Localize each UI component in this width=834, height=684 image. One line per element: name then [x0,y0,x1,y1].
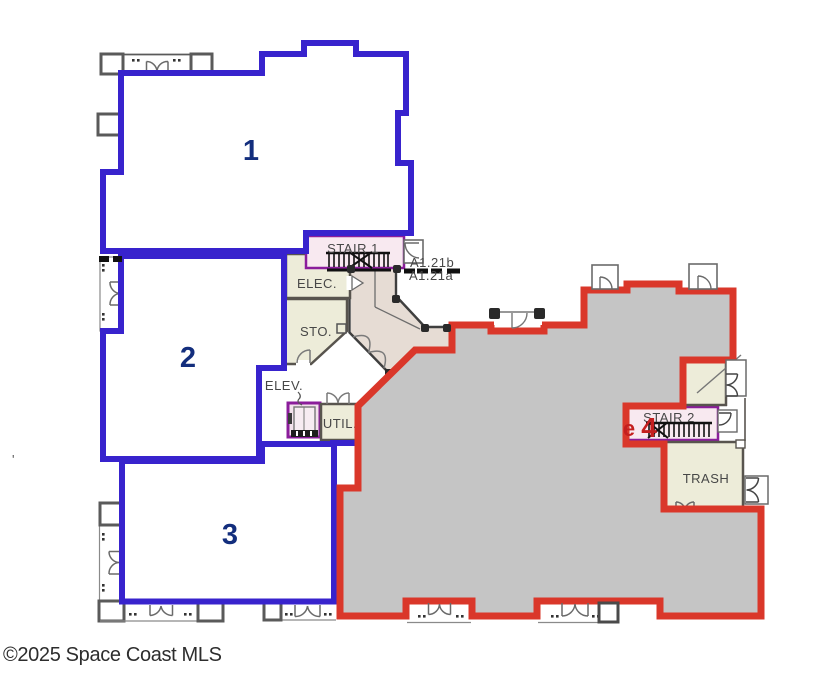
svg-text:ELEC.: ELEC. [297,276,337,291]
svg-text:A1.21a: A1.21a [409,268,453,283]
svg-text:e: e [623,416,635,441]
svg-text:©2025 Space Coast MLS: ©2025 Space Coast MLS [3,644,222,666]
svg-text:TRASH: TRASH [683,471,730,486]
svg-text:STO.: STO. [300,324,332,339]
svg-text:3: 3 [222,519,238,551]
svg-text:4: 4 [641,412,657,443]
svg-text:STAIR 1: STAIR 1 [327,241,379,256]
svg-text:1: 1 [243,135,259,167]
svg-text:': ' [12,452,14,467]
svg-text:ELEV.: ELEV. [265,378,303,393]
svg-text:2: 2 [180,342,196,374]
svg-text:UTIL.: UTIL. [323,416,357,431]
